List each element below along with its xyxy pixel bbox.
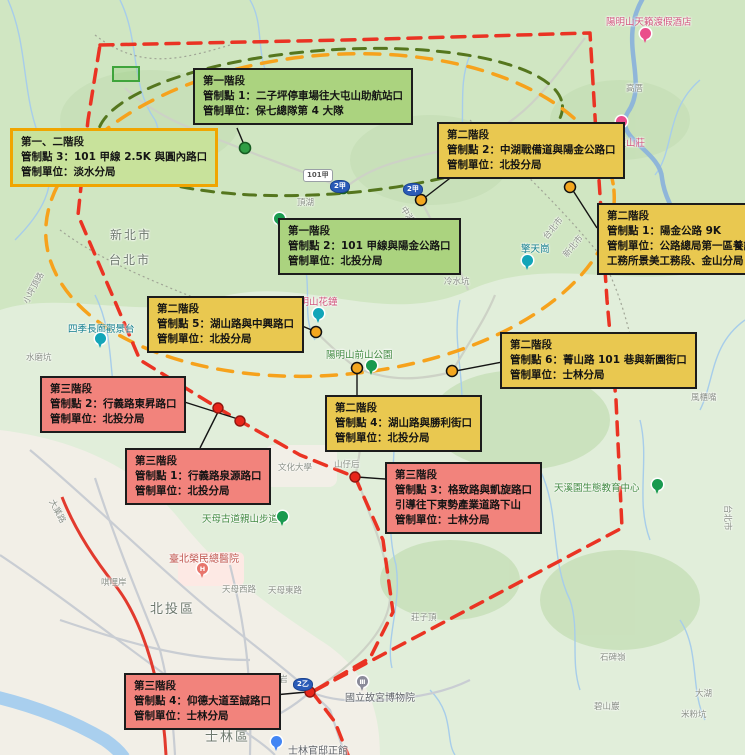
control-dot-phase2 <box>447 366 458 377</box>
map-label-shilin-residence[interactable]: 士林官邸正館 <box>288 742 348 755</box>
callout-phase1and2-point3: 第一、二階段 管制點 3：101 甲線 2.5K 與圓內路口 管制單位：淡水分局 <box>10 128 218 187</box>
callout-line: 第二階段 <box>157 302 294 317</box>
control-dot-phase3 <box>235 416 245 426</box>
callout-phase2-point5: 第二階段 管制點 5：湖山路與中興路口 管制單位：北投分局 <box>147 296 304 353</box>
map-label-zhuangziding: 莊子頂 <box>411 611 437 623</box>
route-shield-2yi: 2乙 <box>293 678 313 691</box>
callout-line: 管制單位：淡水分局 <box>21 165 207 180</box>
callout-line: 第二階段 <box>335 401 472 416</box>
hospital-glyph: H <box>200 565 205 573</box>
callout-line: 管制點 2：行義路東昇路口 <box>50 397 176 412</box>
callout-line: 第三階段 <box>134 679 271 694</box>
callout-line: 管制單位：北投分局 <box>157 332 294 347</box>
callout-line: 工務所景美工務段、金山分局 <box>607 254 745 269</box>
callout-line: 第三階段 <box>50 382 176 397</box>
museum-icon[interactable]: Ⅲ <box>357 676 368 687</box>
callout-phase2-point6: 第二階段 管制點 6：菁山路 101 巷與新園街口 管制單位：士林分局 <box>500 332 697 389</box>
map-label-shibeiling: 石碑嶺 <box>600 651 626 663</box>
museum-glyph: Ⅲ <box>359 678 365 686</box>
callout-line: 管制點 1：二子坪停車場往大屯山助航站口 <box>203 89 403 104</box>
map-label-shuimokeng: 水磨坑 <box>26 351 52 363</box>
callout-line: 管制點 3：101 甲線 2.5K 與圓內路口 <box>21 150 207 165</box>
residence-pin[interactable] <box>271 736 282 747</box>
callout-phase2-point4: 第二階段 管制點 4：湖山路與勝利街口 管制單位：北投分局 <box>325 395 482 452</box>
callout-line: 第二階段 <box>607 209 745 224</box>
map-label-beitou-district: 北投區 <box>150 598 195 617</box>
callout-line: 管制點 4：湖山路與勝利街口 <box>335 416 472 431</box>
callout-line: 第二階段 <box>510 338 687 353</box>
map-label-bishanyan: 碧山巖 <box>594 700 620 712</box>
callout-line: 管制點 2：中湖戰備道與陽金公路口 <box>447 143 615 158</box>
resort-pin[interactable] <box>640 28 651 39</box>
map-label-dinghu: 頂湖 <box>297 196 314 208</box>
callout-phase3-point2: 第三階段 管制點 2：行義路東昇路口 管制單位：北投分局 <box>40 376 186 433</box>
callout-line: 管制單位：北投分局 <box>335 431 472 446</box>
map-label-tianlai-resort[interactable]: 陽明山天籟渡假酒店 <box>606 14 692 28</box>
control-dot-phase3 <box>213 403 223 413</box>
map-canvas[interactable]: 101甲 2甲 2甲 2乙 H Ⅲ 陽明山天籟渡假酒店 高厝 渡假山莊 頂湖 新… <box>0 0 745 755</box>
map-label-shanzihou: 山仔后 <box>334 458 360 470</box>
camera-pin[interactable] <box>95 333 106 344</box>
callout-line: 管制點 1：陽金公路 9K <box>607 224 745 239</box>
map-label-wenhua-university: 文化大學 <box>278 461 312 473</box>
camera-pin[interactable] <box>313 308 324 319</box>
callout-line: 第一、二階段 <box>21 135 207 150</box>
callout-line: 管制點 6：菁山路 101 巷與新園街口 <box>510 353 687 368</box>
callout-phase3-point1: 第三階段 管制點 1：行義路泉源路口 管制單位：北投分局 <box>125 448 271 505</box>
callout-line: 管制單位：士林分局 <box>395 513 532 528</box>
callout-line: 管制單位：北投分局 <box>50 412 176 427</box>
callout-line: 管制點 3：格致路與凱旋路口 <box>395 483 532 498</box>
callout-line: 第一階段 <box>203 74 403 89</box>
small-green-box <box>112 66 140 82</box>
map-label-qingtiangang[interactable]: 擎天崗 <box>521 241 550 255</box>
map-label-taipei-right: 台北市 <box>722 505 734 531</box>
callout-phase1-point1: 第一階段 管制點 1：二子坪停車場往大屯山助航站口 管制單位：保七總隊第 4 大… <box>193 68 413 125</box>
route-shield-2jia: 2甲 <box>330 180 350 193</box>
map-label-tianxiyuan[interactable]: 天溪園生態教育中心 <box>554 480 640 494</box>
callout-line: 管制單位：士林分局 <box>510 368 687 383</box>
hiking-trail-pin[interactable] <box>277 511 288 522</box>
eco-center-pin[interactable] <box>652 479 663 490</box>
map-label-tianmu-east-road: 天母東路 <box>268 584 302 596</box>
control-dot-phase2 <box>311 327 322 338</box>
map-label-dahu: 大湖 <box>695 687 712 699</box>
callout-line: 管制單位：保七總隊第 4 大隊 <box>203 104 403 119</box>
callout-line: 管制點 4：仰德大道至誠路口 <box>134 694 271 709</box>
control-dot-phase1 <box>240 143 251 154</box>
control-dot-phase2 <box>416 195 427 206</box>
callout-line: 管制單位：士林分局 <box>134 709 271 724</box>
map-label-qianshan-park[interactable]: 陽明山前山公園 <box>326 347 393 361</box>
callout-line: 引導往下東勢產業道路下山 <box>395 498 532 513</box>
callout-line: 管制單位：公路總局第一區養護 <box>607 239 745 254</box>
map-label-tianmu-trail[interactable]: 天母古道親山步道 <box>202 511 278 525</box>
camera-pin[interactable] <box>522 255 533 266</box>
callout-phase2-point2: 第二階段 管制點 2：中湖戰備道與陽金公路口 管制單位：北投分局 <box>437 122 625 179</box>
route-shield-2jia: 2甲 <box>403 183 423 196</box>
map-label-gaocuo: 高厝 <box>626 82 643 94</box>
map-label-taipei: 台北市 <box>109 251 151 268</box>
control-dot-phase3 <box>350 472 360 482</box>
callout-phase3-point3: 第三階段 管制點 3：格致路與凱旋路口 引導往下東勢產業道路下山 管制單位：士林… <box>385 462 542 534</box>
callout-line: 管制點 5：湖山路與中興路口 <box>157 317 294 332</box>
callout-line: 第一階段 <box>288 224 451 239</box>
hospital-pin[interactable]: H <box>197 563 208 574</box>
map-label-fengguizui: 風櫃嘴 <box>691 391 717 403</box>
callout-line: 第三階段 <box>395 468 532 483</box>
callout-line: 管制單位：北投分局 <box>447 158 615 173</box>
map-label-mifenkeng: 米粉坑 <box>681 708 707 720</box>
callout-line: 第二階段 <box>447 128 615 143</box>
control-dot-phase2 <box>565 182 576 193</box>
callout-phase3-point4: 第三階段 管制點 4：仰德大道至誠路口 管制單位：士林分局 <box>124 673 281 730</box>
map-label-lengshuikeng: 冷水坑 <box>444 275 470 287</box>
control-dot-phase2 <box>352 363 363 374</box>
callout-phase2-point1: 第二階段 管制點 1：陽金公路 9K 管制單位：公路總局第一區養護 工務所景美工… <box>597 203 745 275</box>
callout-phase1-point2: 第一階段 管制點 2：101 甲線與陽金公路口 管制單位：北投分局 <box>278 218 461 275</box>
callout-line: 管制單位：北投分局 <box>288 254 451 269</box>
callout-line: 第三階段 <box>135 454 261 469</box>
callout-line: 管制點 1：行義路泉源路口 <box>135 469 261 484</box>
map-label-new-taipei: 新北市 <box>110 226 152 243</box>
callout-line: 管制單位：北投分局 <box>135 484 261 499</box>
map-label-tianmu-west-road: 天母西路 <box>222 583 256 595</box>
callout-line: 管制點 2：101 甲線與陽金公路口 <box>288 239 451 254</box>
park-pin[interactable] <box>366 360 377 371</box>
route-shield-101jia: 101甲 <box>303 169 333 182</box>
map-label-qilian: 唭哩岸 <box>101 576 127 588</box>
map-label-palace-museum[interactable]: 國立故宮博物院 <box>345 689 415 704</box>
